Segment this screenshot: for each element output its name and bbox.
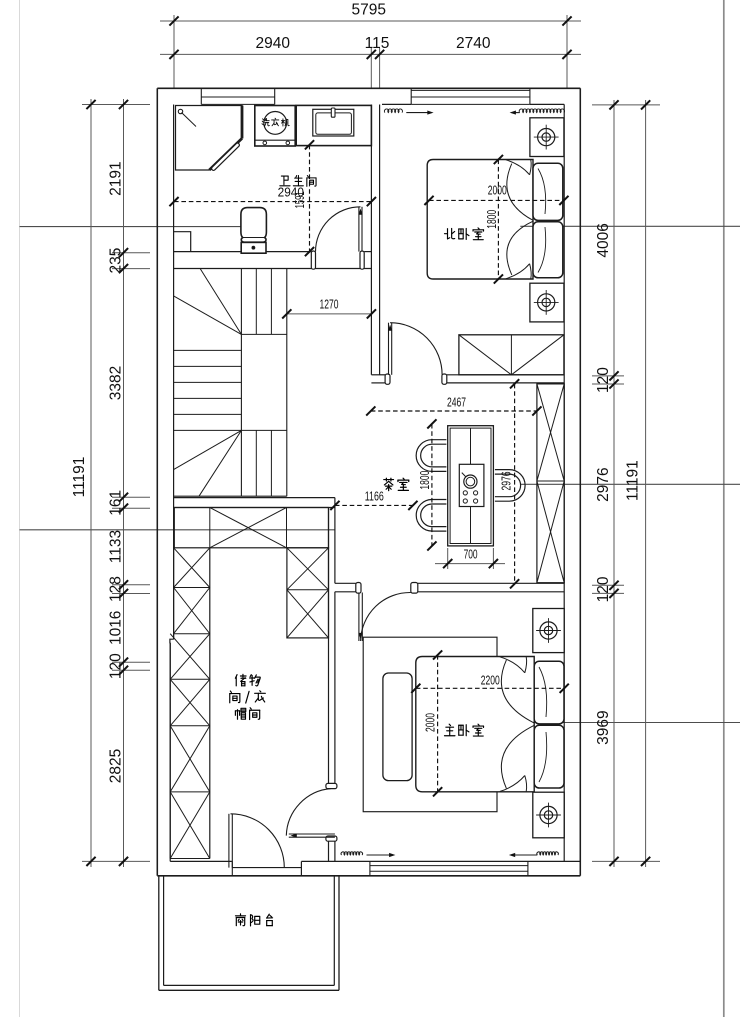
svg-text:2825: 2825 bbox=[108, 749, 125, 783]
svg-text:11191: 11191 bbox=[71, 457, 88, 498]
svg-text:2200: 2200 bbox=[481, 673, 500, 687]
svg-text:2467: 2467 bbox=[447, 396, 466, 410]
svg-text:1270: 1270 bbox=[320, 297, 339, 311]
svg-text:11191: 11191 bbox=[625, 460, 642, 501]
svg-text:120: 120 bbox=[595, 576, 612, 602]
svg-text:1800: 1800 bbox=[485, 210, 499, 229]
svg-text:1016: 1016 bbox=[108, 611, 125, 645]
svg-text:115: 115 bbox=[365, 35, 390, 52]
svg-text:2976: 2976 bbox=[595, 467, 612, 501]
svg-text:1133: 1133 bbox=[108, 530, 125, 563]
svg-text:120: 120 bbox=[595, 367, 612, 393]
svg-text:4006: 4006 bbox=[595, 223, 612, 257]
svg-text:3969: 3969 bbox=[595, 710, 612, 744]
svg-text:128: 128 bbox=[108, 576, 125, 602]
svg-text:3382: 3382 bbox=[108, 366, 125, 400]
svg-text:2191: 2191 bbox=[108, 161, 125, 195]
svg-text:2000: 2000 bbox=[488, 184, 507, 198]
svg-text:1166: 1166 bbox=[365, 489, 384, 503]
svg-text:700: 700 bbox=[464, 547, 478, 561]
svg-text:5795: 5795 bbox=[351, 2, 385, 19]
svg-text:120: 120 bbox=[108, 653, 125, 679]
svg-text:2940: 2940 bbox=[255, 35, 290, 52]
svg-text:161: 161 bbox=[108, 490, 125, 516]
svg-text:2000: 2000 bbox=[423, 713, 437, 732]
svg-text:235: 235 bbox=[108, 248, 125, 274]
svg-text:1800: 1800 bbox=[418, 471, 432, 490]
svg-text:2740: 2740 bbox=[456, 35, 491, 52]
svg-text:1591: 1591 bbox=[293, 191, 307, 208]
svg-text:2976: 2976 bbox=[499, 471, 513, 490]
